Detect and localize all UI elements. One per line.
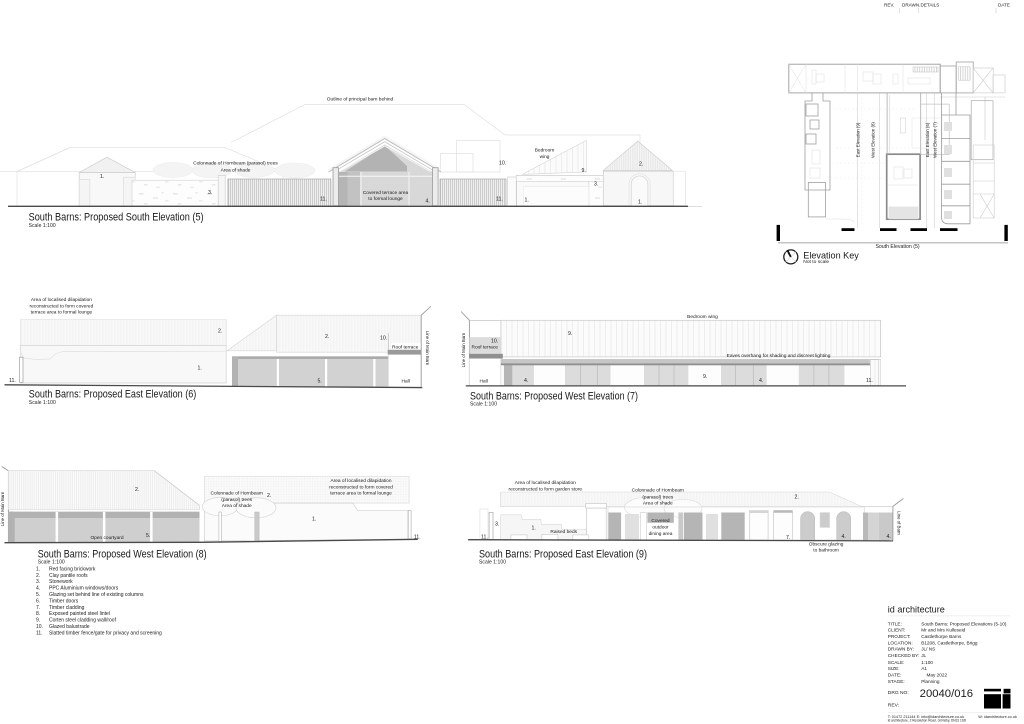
svg-text:SCALE:: SCALE:: [888, 660, 905, 665]
svg-text:JL/ NS: JL/ NS: [921, 647, 935, 652]
svg-text:10.: 10.: [499, 161, 506, 167]
svg-text:West Elevation (7): West Elevation (7): [933, 122, 938, 158]
svg-text:2.: 2.: [135, 487, 139, 493]
svg-text:Obscure glazing: Obscure glazing: [809, 541, 844, 547]
svg-text:Glazing set behind line of exi: Glazing set behind line of existing colu…: [49, 592, 144, 598]
svg-text:REV.: REV.: [884, 3, 894, 8]
svg-text:9.: 9.: [582, 168, 586, 174]
svg-text:Stonework: Stonework: [49, 579, 73, 585]
svg-text:Line of Main Barn: Line of Main Barn: [425, 331, 430, 366]
svg-text:Outline of principal barn behi: Outline of principal barn behind: [327, 97, 394, 103]
svg-text:Scale 1:100: Scale 1:100: [29, 223, 56, 229]
svg-text:LOCATION:: LOCATION:: [888, 640, 913, 645]
svg-text:5.: 5.: [146, 533, 150, 539]
svg-text:10.: 10.: [36, 624, 43, 630]
svg-text:3.: 3.: [495, 522, 499, 528]
svg-text:Bedroom wing: Bedroom wing: [687, 314, 718, 320]
svg-text:TITLE:: TITLE:: [888, 622, 902, 627]
svg-text:1.: 1.: [638, 199, 642, 205]
svg-text:Raised beds: Raised beds: [550, 529, 577, 535]
svg-text:Mr and Mrs Kulleseid: Mr and Mrs Kulleseid: [921, 628, 965, 633]
svg-text:(parasol) trees: (parasol) trees: [221, 497, 253, 503]
svg-text:Roof terrace: Roof terrace: [392, 344, 419, 350]
svg-text:DRAWN.: DRAWN.: [902, 3, 920, 8]
svg-text:Area of localised dilapidation: Area of localised dilapidation: [330, 478, 391, 484]
svg-text:terrace area to formal lounge: terrace area to formal lounge: [330, 491, 392, 497]
svg-text:PROJECT:: PROJECT:: [888, 634, 911, 639]
svg-text:dining area: dining area: [649, 531, 673, 537]
svg-text:Colonnade of Hornbeam (parasol: Colonnade of Hornbeam (parasol) trees: [193, 161, 278, 167]
svg-text:DETAILS: DETAILS: [921, 3, 940, 8]
svg-text:Clay pantile roofs: Clay pantile roofs: [49, 573, 88, 579]
svg-text:11.: 11.: [9, 378, 16, 384]
svg-text:(parasol) trees: (parasol) trees: [642, 494, 674, 500]
svg-text:CHECKED BY:: CHECKED BY:: [888, 653, 920, 658]
svg-text:2.: 2.: [36, 573, 40, 579]
svg-text:11.: 11.: [496, 197, 503, 203]
svg-text:DATE:: DATE:: [888, 672, 901, 677]
svg-text:2.: 2.: [267, 493, 271, 499]
svg-text:Covered: Covered: [651, 518, 669, 524]
svg-text:1.: 1.: [525, 197, 529, 203]
svg-text:outdoor: outdoor: [652, 525, 669, 531]
svg-text:Corten steel cladding wall/roo: Corten steel cladding wall/roof: [49, 618, 117, 624]
svg-text:Line of Main Barn: Line of Main Barn: [0, 491, 5, 526]
svg-text:6.: 6.: [36, 598, 40, 604]
svg-text:4.: 4.: [426, 198, 430, 204]
svg-text:11.: 11.: [866, 378, 873, 384]
svg-text:20040/016: 20040/016: [920, 688, 973, 700]
svg-text:2.: 2.: [218, 329, 222, 335]
svg-text:1:100: 1:100: [921, 660, 933, 665]
svg-text:East Elevation (9): East Elevation (9): [856, 122, 861, 157]
svg-text:3.: 3.: [36, 579, 40, 585]
svg-text:West Elevation (8): West Elevation (8): [871, 122, 876, 158]
svg-text:4.: 4.: [759, 378, 763, 384]
svg-text:1.: 1.: [36, 566, 40, 572]
svg-text:10.: 10.: [380, 336, 387, 342]
svg-text:Timber doors: Timber doors: [49, 598, 79, 604]
svg-text:9.: 9.: [703, 374, 707, 380]
svg-text:Bedroom: Bedroom: [535, 148, 554, 154]
svg-text:Timber cladding: Timber cladding: [49, 605, 85, 611]
svg-text:Colonnade of Hornbeam: Colonnade of Hornbeam: [632, 488, 684, 494]
svg-text:Area of shade: Area of shade: [221, 168, 251, 174]
svg-text:Line of Barn: Line of Barn: [896, 511, 901, 535]
svg-text:8.: 8.: [36, 611, 40, 617]
svg-text:reconstructed to form covered: reconstructed to form covered: [329, 484, 393, 490]
svg-text:JL: JL: [921, 653, 926, 658]
svg-text:B1208, Castlethorpe, Brigg: B1208, Castlethorpe, Brigg: [921, 640, 978, 645]
svg-text:STAGE:: STAGE:: [888, 679, 905, 684]
svg-text:4.: 4.: [887, 534, 891, 540]
svg-text:id architecture: id architecture: [888, 604, 945, 614]
svg-text:Covered terrace area: Covered terrace area: [363, 190, 409, 196]
svg-text:5.: 5.: [36, 592, 40, 598]
svg-text:Planning: Planning: [921, 679, 940, 684]
svg-text:wing: wing: [540, 154, 550, 160]
svg-text:Line of Main Barn: Line of Main Barn: [461, 332, 466, 367]
svg-text:Hall: Hall: [402, 379, 410, 385]
svg-text:id architecture, 2 Resolutio: id architecture, 2 Resolution Road, Grim…: [888, 719, 967, 723]
svg-text:11.: 11.: [36, 630, 43, 636]
svg-text:Area of shade: Area of shade: [643, 501, 673, 507]
svg-text:Exposed painted steel lintel: Exposed painted steel lintel: [49, 611, 110, 617]
svg-text:Scale 1:100: Scale 1:100: [470, 402, 497, 408]
svg-text:3.: 3.: [594, 182, 598, 188]
svg-text:Hall: Hall: [480, 379, 488, 385]
svg-text:2.: 2.: [639, 161, 643, 167]
svg-text:1.: 1.: [100, 174, 104, 180]
svg-text:reconstructed to form covered: reconstructed to form covered: [30, 303, 94, 309]
svg-text:A1: A1: [921, 666, 927, 671]
svg-text:11.: 11.: [320, 197, 327, 203]
svg-text:4.: 4.: [842, 534, 846, 540]
svg-text:DRG NO:: DRG NO:: [888, 690, 909, 696]
svg-text:Slatted timber fence/gate for: Slatted timber fence/gate for privacy an…: [49, 630, 162, 636]
svg-text:4.: 4.: [524, 378, 528, 384]
svg-text:SIZE:: SIZE:: [888, 666, 900, 671]
svg-text:DATE: DATE: [998, 3, 1010, 8]
svg-text:9.: 9.: [568, 331, 572, 337]
svg-text:PPC Aluminium windows/doors: PPC Aluminium windows/doors: [49, 586, 119, 592]
svg-text:Glazed balustrade: Glazed balustrade: [49, 624, 90, 630]
svg-text:Scale 1:100: Scale 1:100: [29, 400, 56, 406]
svg-text:2.: 2.: [795, 495, 799, 501]
svg-text:Castlethorpe Barns: Castlethorpe Barns: [921, 634, 962, 639]
svg-text:1.: 1.: [312, 517, 316, 523]
svg-text:Eaves overhang for shading and: Eaves overhang for shading and discreet …: [727, 353, 831, 359]
svg-text:Not to scale: Not to scale: [803, 259, 829, 265]
svg-text:W: idarchitecture.co.uk: W: idarchitecture.co.uk: [978, 715, 1017, 719]
svg-text:East Elevation (6): East Elevation (6): [925, 122, 930, 157]
svg-text:1.: 1.: [532, 526, 536, 532]
svg-text:to formal lounge: to formal lounge: [368, 196, 403, 202]
svg-text:2.: 2.: [325, 334, 329, 340]
svg-text:May 2022: May 2022: [927, 672, 948, 677]
svg-text:Scale 1:100: Scale 1:100: [38, 560, 65, 566]
svg-text:3.: 3.: [208, 190, 212, 196]
svg-text:CLIENT:: CLIENT:: [888, 628, 905, 633]
svg-text:to bathroom: to bathroom: [813, 548, 839, 554]
svg-text:Elevation Key: Elevation Key: [803, 250, 859, 260]
svg-text:7.: 7.: [786, 535, 790, 541]
svg-text:Area of localised dilapidation: Area of localised dilapidation: [31, 297, 92, 303]
svg-text:Red facing brickwork: Red facing brickwork: [49, 566, 96, 572]
svg-text:Colonnade of Hornbeam: Colonnade of Hornbeam: [211, 491, 263, 497]
svg-text:5.: 5.: [318, 379, 322, 385]
svg-text:Area of shade: Area of shade: [222, 503, 252, 509]
svg-text:Roof terrace: Roof terrace: [472, 345, 499, 351]
svg-text:Scale 1:100: Scale 1:100: [479, 560, 506, 566]
svg-text:terrace area to formal lounge: terrace area to formal lounge: [31, 310, 93, 316]
svg-text:Open courtyard: Open courtyard: [90, 535, 123, 541]
svg-text:7.: 7.: [36, 605, 40, 611]
svg-text:reconstructed to form garden s: reconstructed to form garden store: [509, 486, 583, 492]
svg-text:DRAWN BY:: DRAWN BY:: [888, 647, 914, 652]
svg-text:South Elevation (5): South Elevation (5): [875, 244, 919, 250]
svg-text:Area of localised dilapidation: Area of localised dilapidation: [515, 480, 576, 486]
svg-text:4.: 4.: [36, 586, 40, 592]
svg-text:10.: 10.: [491, 338, 498, 344]
svg-text:South Barns: Proposed Elevatio: South Barns: Proposed Elevations (5-10): [921, 622, 1007, 627]
svg-text:9.: 9.: [36, 618, 40, 624]
svg-text:REV:: REV:: [888, 703, 899, 709]
svg-text:1.: 1.: [198, 366, 202, 372]
